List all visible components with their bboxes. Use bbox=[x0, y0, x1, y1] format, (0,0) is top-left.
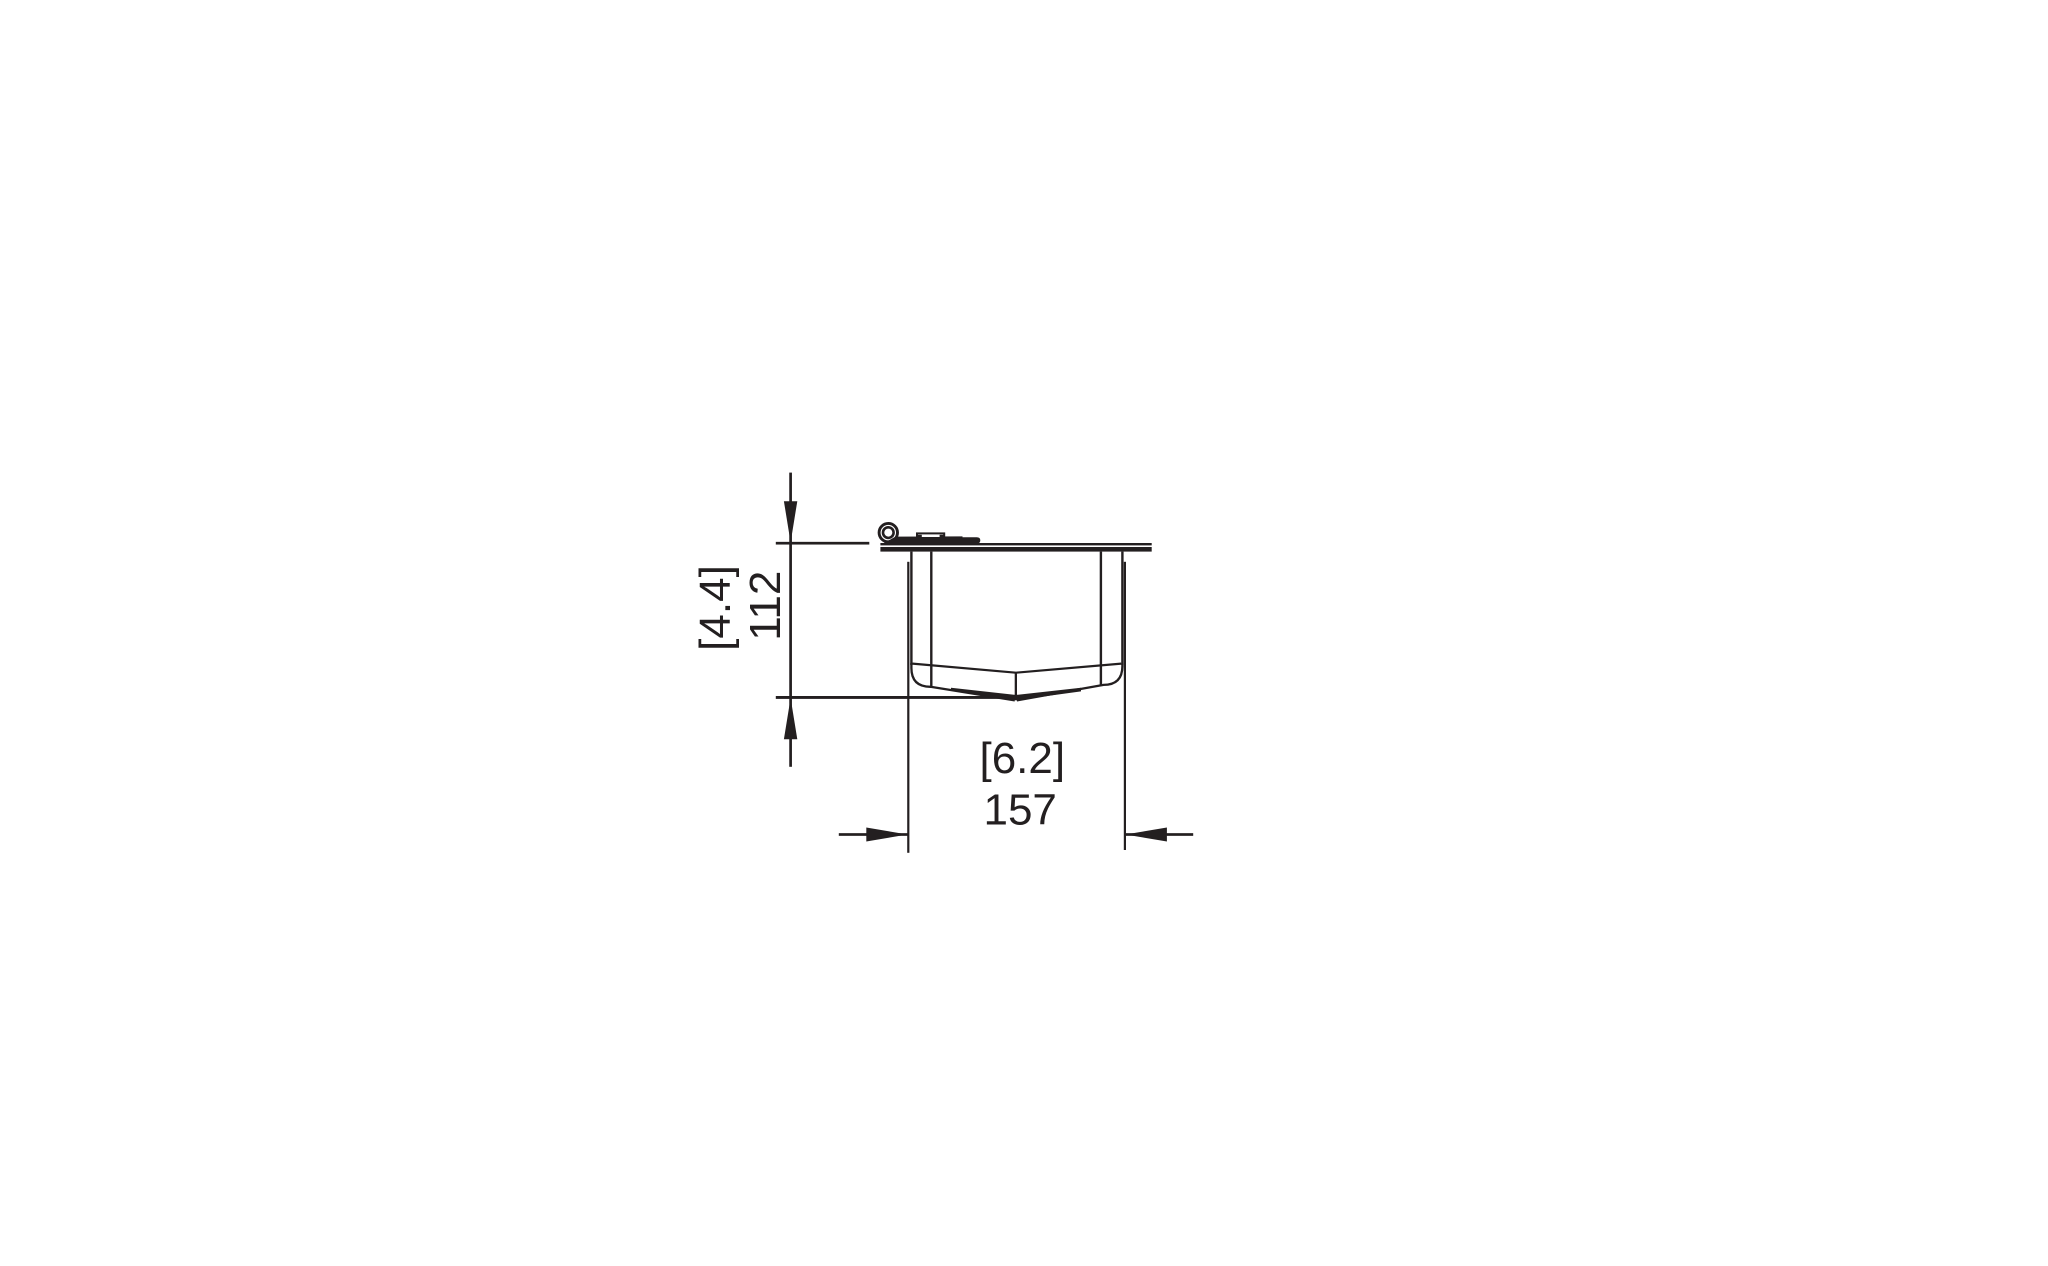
svg-text:[6.2]: [6.2] bbox=[979, 734, 1065, 783]
svg-text:[4.4]: [4.4] bbox=[691, 565, 740, 651]
svg-text:112: 112 bbox=[741, 571, 790, 641]
svg-text:157: 157 bbox=[983, 786, 1056, 835]
